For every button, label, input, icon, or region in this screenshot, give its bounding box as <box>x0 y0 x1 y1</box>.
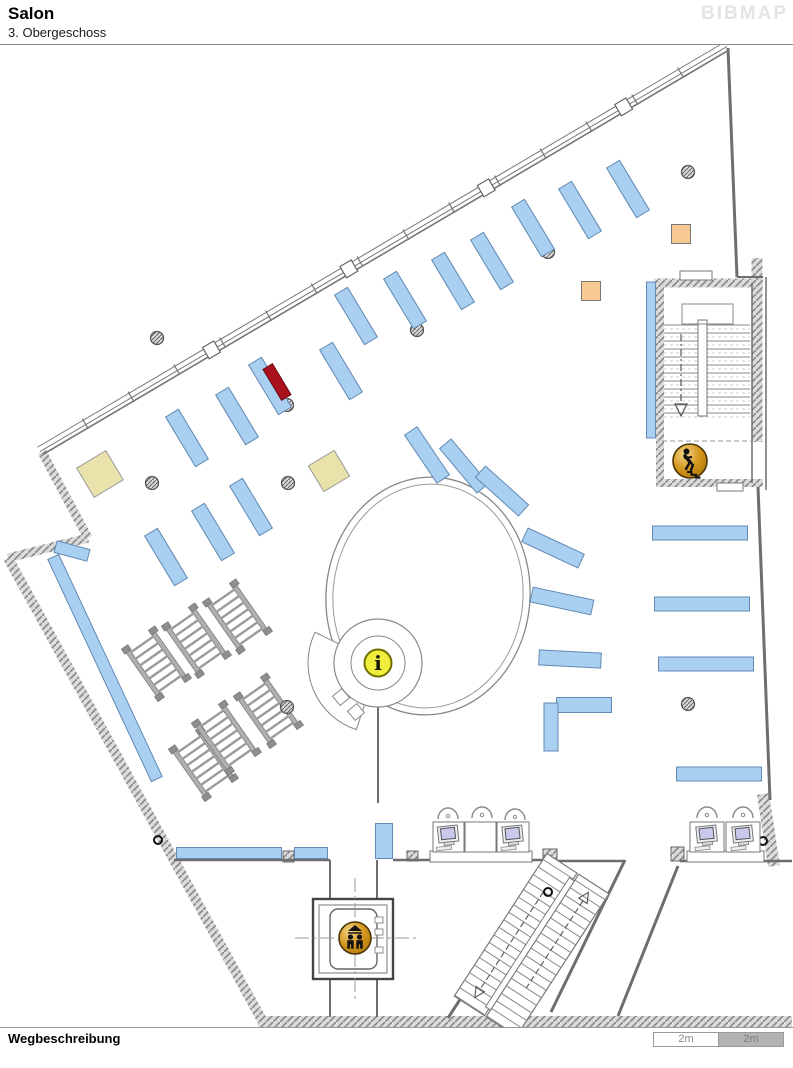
bench-rung <box>239 629 262 645</box>
shelf <box>295 848 328 859</box>
person-head <box>348 934 353 939</box>
wall <box>728 48 737 277</box>
floor-label: 3. Obergeschoss <box>8 25 106 40</box>
monitor-screen <box>735 827 750 839</box>
shelves <box>48 160 762 858</box>
facade-node <box>340 260 358 278</box>
shelf <box>544 703 558 751</box>
bench-rung <box>185 633 208 649</box>
monitor-screen <box>440 827 455 839</box>
bench-rung <box>171 613 194 629</box>
bench-rung <box>175 620 198 636</box>
bench-rung <box>228 750 251 766</box>
wall <box>758 487 770 800</box>
shelf <box>376 824 393 859</box>
scale-bar: 2m 2m <box>653 1032 784 1047</box>
bench-rung <box>215 730 238 746</box>
header: Salon 3. Obergeschoss BIBMAP <box>0 0 793 45</box>
bench-rung <box>219 737 242 753</box>
bench-unit <box>161 603 231 679</box>
bench-rung <box>131 636 154 652</box>
bibmap-logo: BIBMAP <box>701 3 788 25</box>
bench-rung <box>261 710 284 726</box>
info-icon-letter: i <box>374 651 382 675</box>
desks <box>430 807 764 862</box>
bench-rung <box>154 669 177 685</box>
bench-rung <box>196 763 219 779</box>
scale-segment-1: 2m <box>653 1032 718 1047</box>
bench-rung <box>266 716 289 732</box>
bench-rung <box>145 656 168 672</box>
facade-node <box>615 98 633 116</box>
bench-rung <box>189 640 212 656</box>
bench-rung <box>205 717 228 733</box>
pillar <box>682 166 695 179</box>
stair-arrow-down <box>675 404 687 416</box>
monitor-base <box>444 841 454 845</box>
bench-rung <box>235 622 258 638</box>
wall-hatched <box>763 794 774 866</box>
shelf <box>335 287 378 344</box>
page-title: Salon <box>8 4 54 24</box>
shelf <box>647 282 656 438</box>
bench-rung <box>221 602 244 618</box>
shelf <box>216 387 259 444</box>
facade-node <box>477 179 495 197</box>
wall <box>618 866 678 1016</box>
shelf <box>230 478 273 535</box>
diagonal-staircase <box>454 854 609 1037</box>
monitor-screen <box>699 827 714 839</box>
wall-column <box>671 847 684 861</box>
shelf <box>166 409 209 466</box>
table-orange <box>582 282 601 301</box>
shelf <box>677 767 762 781</box>
bench-rung <box>257 703 280 719</box>
bench-rung <box>247 690 270 706</box>
window-wall <box>37 42 729 455</box>
stair-divider <box>698 320 707 416</box>
shelf <box>557 698 612 713</box>
table-beige <box>308 450 349 491</box>
bench-rung <box>149 663 172 679</box>
person-arm <box>684 457 692 458</box>
pillar <box>281 701 294 714</box>
shelf <box>475 466 528 516</box>
shelf <box>653 526 748 540</box>
facade-node <box>203 341 221 359</box>
table-orange <box>672 225 691 244</box>
shelf <box>192 503 235 560</box>
elevator-door-notch <box>375 929 383 935</box>
scale-segment-2: 2m <box>718 1032 784 1047</box>
bench-unit <box>202 579 272 655</box>
monitor-base <box>702 841 712 845</box>
shelf <box>471 232 514 289</box>
pillar <box>682 698 695 711</box>
monitor-base <box>508 841 518 845</box>
door <box>717 483 743 491</box>
bench-rung <box>140 649 163 665</box>
route-description-label: Wegbeschreibung <box>8 1031 120 1046</box>
shelf <box>432 252 475 309</box>
bench-rung <box>201 710 224 726</box>
monitor-base <box>738 841 748 845</box>
shelf <box>384 271 427 328</box>
table-beige <box>77 451 124 498</box>
bench-rung <box>230 616 253 632</box>
bench-rung <box>243 683 266 699</box>
bench-rung <box>194 646 217 662</box>
bench-rung <box>201 769 224 785</box>
shelf <box>530 587 594 615</box>
desk-carrel <box>465 822 496 852</box>
shelf <box>512 199 555 256</box>
bench-rung <box>135 643 158 659</box>
bench-rung <box>205 776 228 792</box>
person-head <box>684 449 690 455</box>
footer: Wegbeschreibung 2m 2m <box>0 1027 793 1068</box>
shelf <box>405 427 450 483</box>
core-structures <box>295 271 750 1036</box>
shelf <box>559 181 602 238</box>
shelf <box>177 848 282 859</box>
bench-rung <box>158 676 181 692</box>
monitor-screen <box>505 827 520 839</box>
pillar <box>151 332 164 345</box>
bench-rung <box>198 653 221 669</box>
shelf <box>320 342 363 399</box>
shelf <box>607 160 650 217</box>
shelf <box>539 650 602 668</box>
bench-rung <box>252 696 275 712</box>
bench-rung <box>226 609 249 625</box>
bench-rung <box>224 743 247 759</box>
shelf <box>659 657 754 671</box>
shelf <box>145 528 188 585</box>
shelf <box>440 439 489 493</box>
person-head <box>357 934 362 939</box>
elevator-door-notch <box>375 947 383 953</box>
desk-base <box>430 851 532 862</box>
pillar <box>282 477 295 490</box>
elevator-door-notch <box>375 917 383 923</box>
shelf <box>522 528 585 568</box>
desk-base <box>687 851 764 862</box>
bench-rung <box>216 596 239 612</box>
bench-rung <box>212 589 235 605</box>
bench-unit <box>121 626 191 702</box>
bench-rung <box>187 749 210 765</box>
bench-rung <box>192 756 215 772</box>
bench-rung <box>182 743 205 759</box>
door <box>680 271 712 280</box>
bench-rung <box>178 736 201 752</box>
bench-rung <box>180 626 203 642</box>
bench-rung <box>270 723 293 739</box>
bench-rung <box>210 723 233 739</box>
wall-hatched <box>42 452 88 538</box>
pillar <box>146 477 159 490</box>
shelf <box>655 597 750 611</box>
floor-plan: i <box>0 0 793 1067</box>
